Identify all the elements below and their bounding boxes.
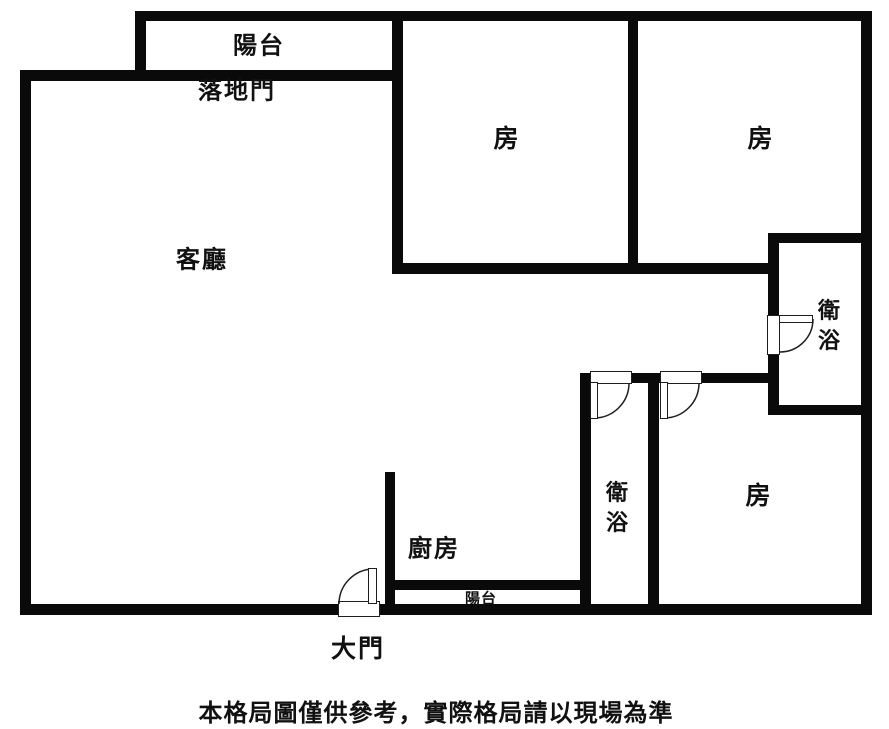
label-room-top-right: 房 xyxy=(747,119,774,155)
door-swing-arcs xyxy=(0,0,889,729)
label-kitchen: 廚房 xyxy=(408,529,460,564)
wall-rooms-bottom xyxy=(392,263,779,274)
wall-outer-left xyxy=(20,70,31,615)
label-bathroom-right: 衛浴 xyxy=(816,296,842,356)
label-sliding-door: 落地門 xyxy=(198,71,276,106)
wall-rooms-divider xyxy=(628,11,638,274)
bath2-door-arc-icon xyxy=(594,383,629,418)
wall-outer-right xyxy=(861,11,872,615)
label-room-bottom-right: 房 xyxy=(745,476,772,512)
bath1-door-leaf-icon xyxy=(779,315,813,323)
wall-kitchen-left xyxy=(385,472,395,615)
wall-room1-left xyxy=(392,11,403,274)
label-bathroom-center: 衛浴 xyxy=(604,478,630,538)
room3-door-arc-icon xyxy=(664,383,699,418)
wall-bath2-right xyxy=(648,373,659,615)
label-balcony-top: 陽台 xyxy=(233,26,285,61)
main-door-leaf-icon xyxy=(368,568,377,604)
wall-bath1-top xyxy=(768,233,872,243)
wall-bath1-bottom xyxy=(768,405,872,415)
bath2-door-leaf-icon xyxy=(590,382,598,419)
bath1-door-arc-icon xyxy=(780,319,813,352)
label-main-door: 大門 xyxy=(331,629,385,665)
label-balcony-bottom: 陽台 xyxy=(465,588,497,609)
wall-outer-bottom xyxy=(20,604,872,615)
wall-outer-top xyxy=(135,11,872,21)
label-room-top-center: 房 xyxy=(493,119,520,155)
label-living-room: 客廳 xyxy=(176,240,228,275)
room3-door-leaf-icon xyxy=(660,382,668,419)
floor-plan: 陽台 落地門 客廳 房 房 衛浴 衛浴 房 廚房 陽台 大門 xyxy=(0,0,889,729)
disclaimer-text: 本格局圖僅供參考，實際格局請以現場為準 xyxy=(199,693,674,728)
